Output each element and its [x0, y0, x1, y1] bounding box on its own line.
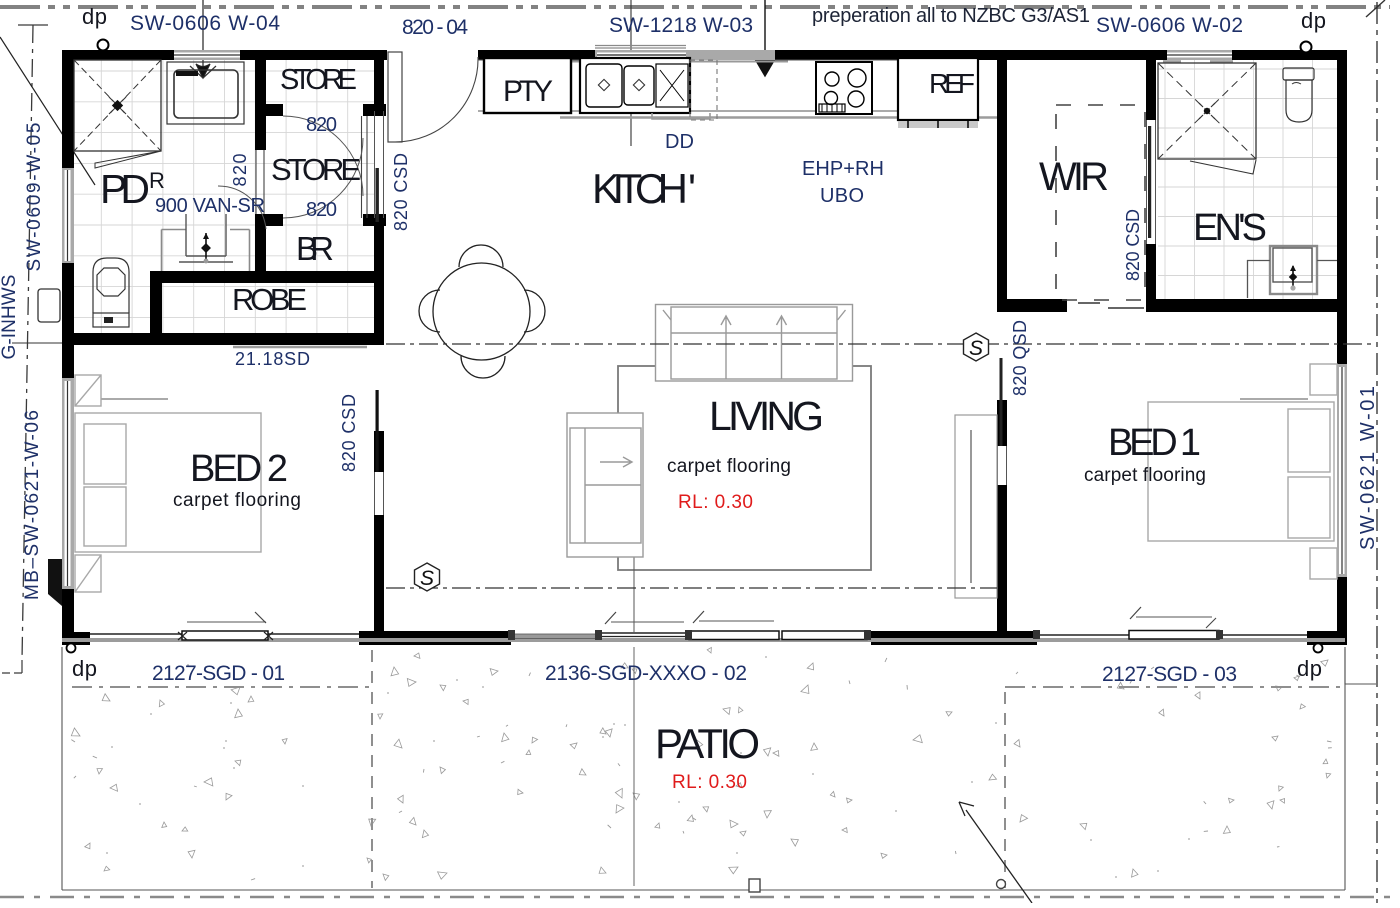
svg-text:820 CSD: 820 CSD	[339, 394, 359, 472]
svg-text:SW-0606 W-04: SW-0606 W-04	[130, 12, 280, 35]
svg-text:EN'S: EN'S	[1193, 207, 1267, 249]
svg-text:820 QSD: 820 QSD	[1010, 320, 1030, 396]
svg-text:PD: PD	[100, 166, 150, 212]
svg-text:LIVING: LIVING	[709, 393, 824, 439]
svg-text:UBO: UBO	[820, 185, 864, 207]
svg-text:S: S	[420, 567, 434, 590]
svg-text:S: S	[969, 337, 983, 360]
svg-text:BED 1: BED 1	[1108, 422, 1201, 464]
svg-text:ROBE: ROBE	[232, 282, 307, 317]
svg-text:preperation all to NZBC G3/AS1: preperation all to NZBC G3/AS1	[812, 5, 1090, 27]
svg-text:EHP+RH: EHP+RH	[802, 158, 884, 180]
svg-text:820: 820	[306, 114, 337, 136]
svg-text:carpet flooring: carpet flooring	[173, 490, 301, 511]
svg-text:820: 820	[230, 154, 250, 187]
svg-text:carpet flooring: carpet flooring	[667, 456, 791, 477]
svg-text:dp: dp	[1301, 8, 1326, 33]
svg-text:dp: dp	[1297, 656, 1322, 681]
svg-text:900 VAN-SR: 900 VAN-SR	[155, 195, 265, 217]
svg-text:21.18SD: 21.18SD	[235, 349, 310, 369]
svg-text:PATIO: PATIO	[655, 720, 760, 767]
svg-text:820 CSD: 820 CSD	[391, 153, 411, 231]
svg-text:STORE: STORE	[280, 64, 357, 96]
svg-text:STORE: STORE	[271, 152, 361, 187]
svg-text:BED 2: BED 2	[190, 448, 288, 490]
svg-text:RL: 0.30: RL: 0.30	[678, 492, 753, 513]
svg-text:820 - 04: 820 - 04	[402, 16, 468, 39]
svg-text:dp: dp	[82, 4, 107, 29]
svg-text:820: 820	[306, 199, 337, 221]
svg-text:REF: REF	[929, 68, 975, 99]
svg-text:carpet flooring: carpet flooring	[1084, 465, 1206, 486]
svg-text:2127-SGD - 03: 2127-SGD - 03	[1102, 663, 1237, 686]
svg-text:SW-0621 W-01: SW-0621 W-01	[1357, 386, 1379, 550]
svg-text:R: R	[149, 168, 165, 193]
svg-text:SW-0606 W-02: SW-0606 W-02	[1096, 14, 1243, 37]
svg-text:WIR: WIR	[1039, 155, 1109, 199]
svg-text:': '	[688, 165, 696, 212]
svg-text:2127-SGD - 01: 2127-SGD - 01	[152, 662, 285, 685]
svg-text:MB–SW-0621-W-06: MB–SW-0621-W-06	[22, 410, 43, 600]
svg-text:SW-0609-W-05: SW-0609-W-05	[24, 123, 45, 272]
svg-text:SW-1218 W-03: SW-1218 W-03	[609, 14, 753, 37]
svg-text:RL: 0.30: RL: 0.30	[672, 772, 747, 793]
svg-text:G-INHWS: G-INHWS	[0, 275, 20, 360]
svg-text:DD: DD	[665, 131, 694, 153]
svg-text:KITCH: KITCH	[592, 165, 688, 212]
svg-text:BR: BR	[296, 230, 334, 267]
svg-text:2136-SGD-XXXO - 02: 2136-SGD-XXXO - 02	[545, 662, 747, 685]
svg-text:820 CSD: 820 CSD	[1123, 209, 1143, 281]
svg-text:PTY: PTY	[503, 75, 553, 108]
svg-text:dp: dp	[72, 656, 97, 681]
